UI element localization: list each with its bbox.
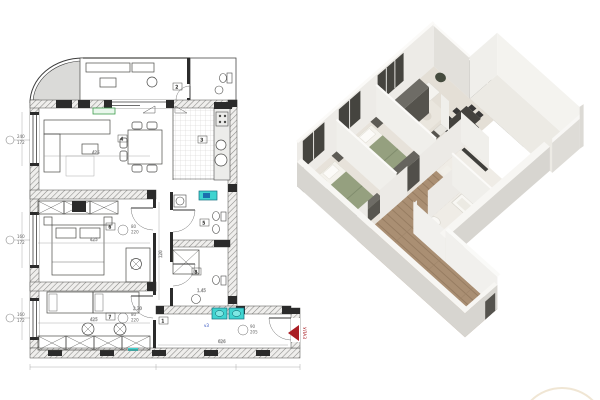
room-tag: 1 [162, 319, 165, 324]
curved-terrace [30, 58, 83, 103]
room-tag: 4 [121, 137, 124, 142]
bathroom-2 [173, 250, 226, 304]
window-markers: 240 172 160 172 160 172 [6, 134, 30, 323]
entry-door-arc [269, 318, 291, 340]
nightstand [44, 217, 52, 225]
room-tag: 5 [203, 221, 206, 226]
sofa-back [44, 120, 110, 134]
mid-wall-2 [30, 282, 156, 291]
window-marker-icon [6, 136, 14, 144]
pillow [49, 294, 57, 311]
double-bed [52, 225, 104, 275]
basin-bowl [216, 311, 224, 317]
dim-hall: 626 [218, 339, 226, 344]
terrace-floor-wedge [33, 61, 83, 103]
toilet-tank [221, 212, 226, 221]
living-room [44, 120, 162, 176]
note-label: v3 [204, 323, 209, 328]
door-w: 80 [131, 224, 137, 229]
door-h: 220 [131, 230, 139, 235]
toilet [220, 74, 227, 83]
floor-plans-image: УЛАЗ v3 425 425 425 626 120 1.45 2.20 24… [0, 0, 600, 400]
chair [147, 165, 157, 172]
kitchen-tiles [173, 108, 214, 180]
window-sill: 172 [17, 240, 25, 245]
toilet-tank [221, 276, 226, 285]
room-tag: 7 [109, 315, 112, 320]
window-size: 160 [17, 234, 25, 239]
dimension-annotations: 425 425 425 626 120 1.45 2.20 [22, 112, 300, 370]
chair [132, 122, 142, 129]
dim-bath: 1.45 [197, 288, 206, 293]
door-marker-icon [238, 325, 248, 335]
window-sill: 172 [17, 140, 25, 145]
basin-bowl [233, 311, 241, 317]
toilet [213, 276, 220, 285]
toilet [213, 212, 220, 221]
dim-living: 425 [92, 150, 100, 155]
dim-bedroom2: 425 [90, 317, 98, 322]
window-size: 240 [17, 134, 25, 139]
door-marker-icon [118, 225, 128, 235]
pillow [56, 228, 76, 238]
pillow [95, 294, 103, 311]
window-2 [30, 212, 39, 268]
terrace-wall-edge [580, 104, 584, 149]
room-tag: 6 [109, 225, 112, 230]
chair [132, 165, 142, 172]
door-swing-arc [173, 210, 195, 232]
sofa-chaise [44, 134, 60, 172]
screenshot-canvas: УЛАЗ v3 425 425 425 626 120 1.45 2.20 24… [0, 0, 600, 400]
washbasin [192, 295, 201, 304]
door-w: 80 [131, 312, 137, 317]
wall-segment [187, 58, 190, 84]
window-1 [30, 112, 39, 166]
watermark-logo-arc [518, 388, 600, 400]
toilet-tank [227, 73, 232, 83]
washer-drum [203, 193, 210, 198]
desk [126, 248, 150, 282]
window-marker-icon [6, 236, 14, 244]
room-tag: 3 [201, 138, 204, 143]
mid-wall-1 [30, 190, 156, 199]
dim-door: 2.20 [133, 306, 142, 311]
entry-label: УЛАЗ [301, 327, 307, 339]
sink-bowl [215, 154, 227, 166]
window-marker-icon [6, 314, 14, 322]
door-marker-icon [118, 313, 128, 323]
room-tag: 2 [176, 85, 179, 90]
dim-corridor: 120 [158, 250, 163, 258]
west-windows [30, 112, 39, 340]
exterior-walls [30, 100, 300, 358]
dining-table [128, 130, 162, 164]
window-3 [30, 298, 39, 340]
washbasin [176, 197, 184, 205]
dark-cabinet [72, 201, 86, 212]
door-w: 90 [250, 324, 256, 329]
radiator-highlight [93, 108, 115, 114]
sink-bowl [216, 140, 226, 150]
bidet [213, 225, 220, 234]
rug [66, 156, 94, 176]
kitchen-dark-cabinet [214, 102, 232, 109]
floor-plan-2d: УЛАЗ v3 425 425 425 626 120 1.45 2.20 24… [6, 58, 307, 370]
window-sill: 172 [17, 318, 25, 323]
utility-marker-cyan [128, 348, 138, 351]
door-h: 220 [131, 318, 139, 323]
window-size: 160 [17, 312, 25, 317]
chair [147, 122, 157, 129]
floor-plan-3d [297, 22, 600, 337]
top-terrace-room [80, 58, 190, 102]
terrace-room-outline [80, 58, 190, 102]
dim-bedroom1: 425 [90, 237, 98, 242]
door-h: 205 [250, 330, 258, 335]
single-bed [47, 292, 93, 313]
room-tag: 8 [195, 270, 198, 275]
bathroom-1 [173, 191, 226, 234]
